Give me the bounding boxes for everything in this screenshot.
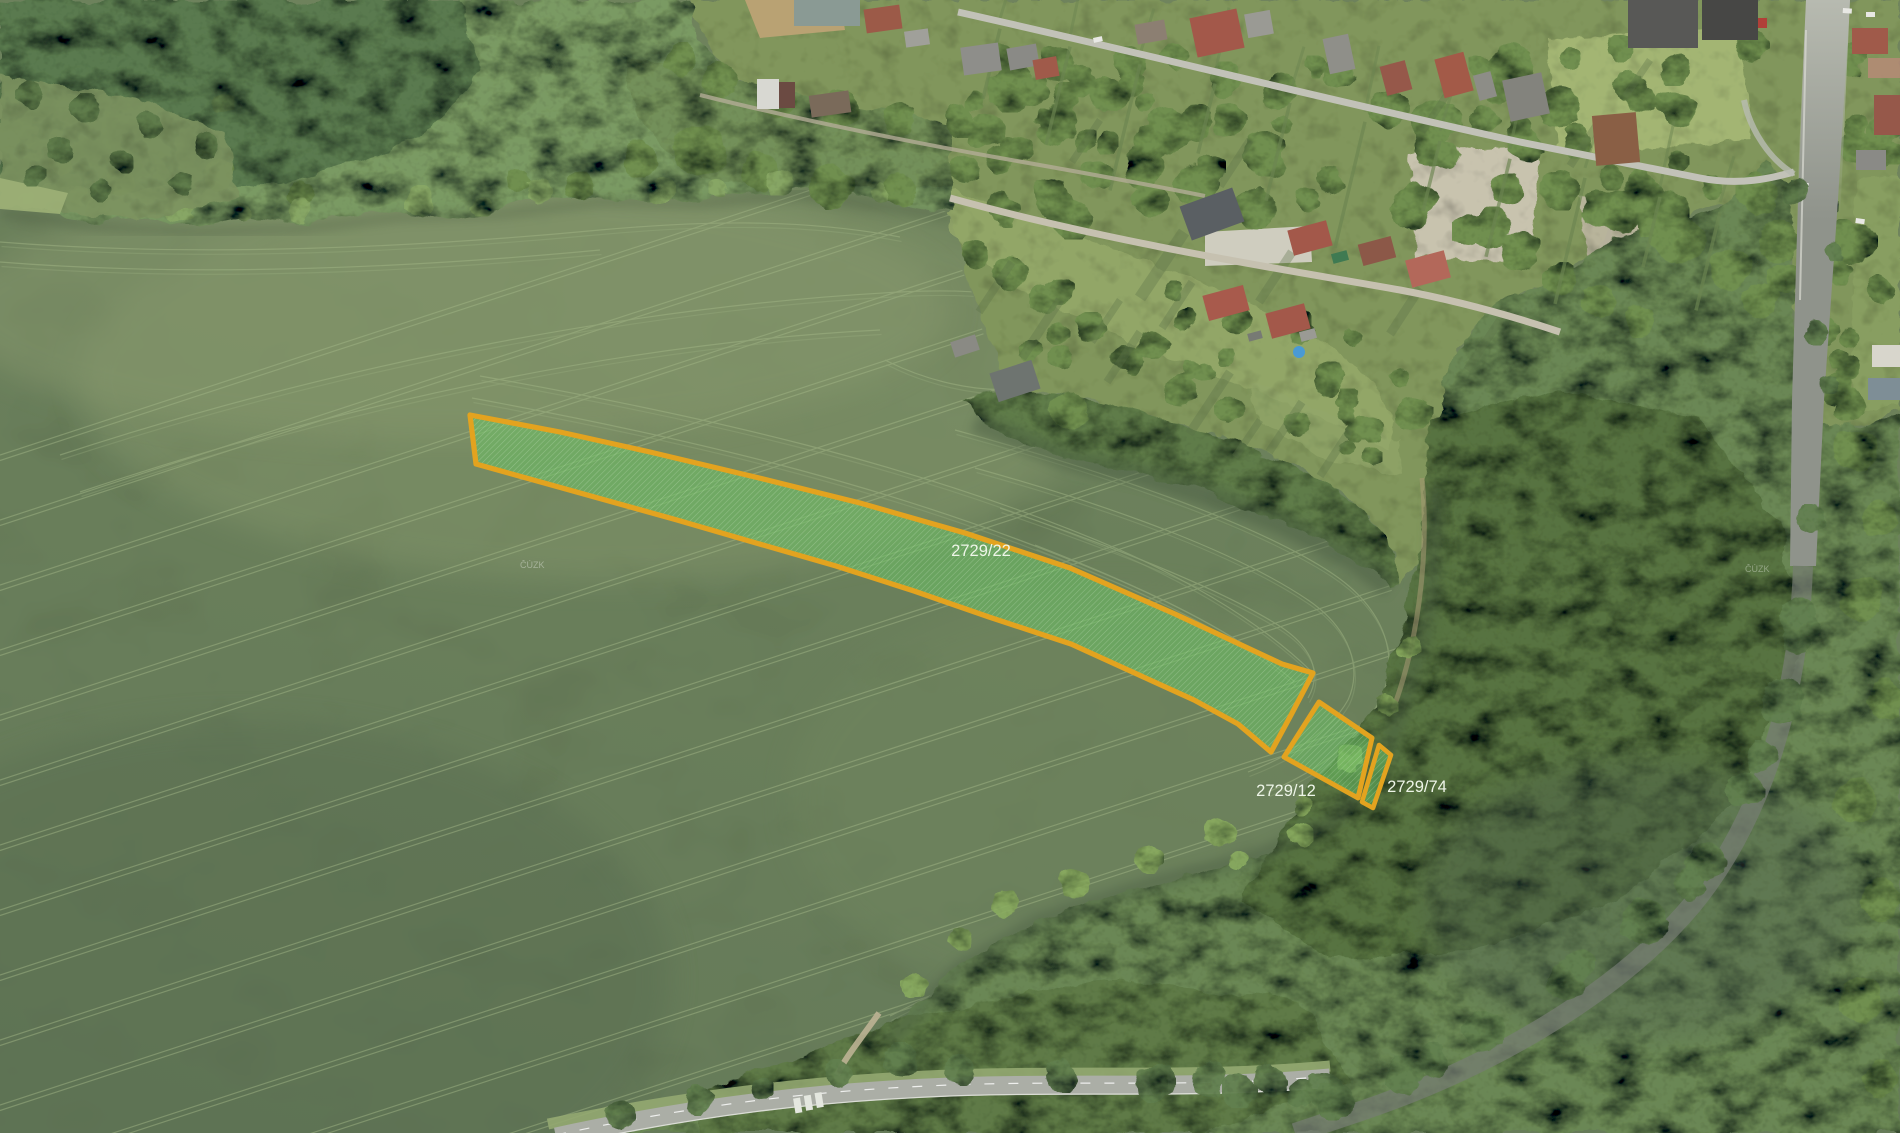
svg-text:ČÚZK: ČÚZK [520, 560, 545, 570]
svg-text:ČÚZK: ČÚZK [1745, 564, 1770, 574]
svg-text:2729/12: 2729/12 [1256, 782, 1316, 800]
svg-text:2729/74: 2729/74 [1387, 778, 1447, 796]
svg-text:2729/22: 2729/22 [951, 542, 1011, 560]
